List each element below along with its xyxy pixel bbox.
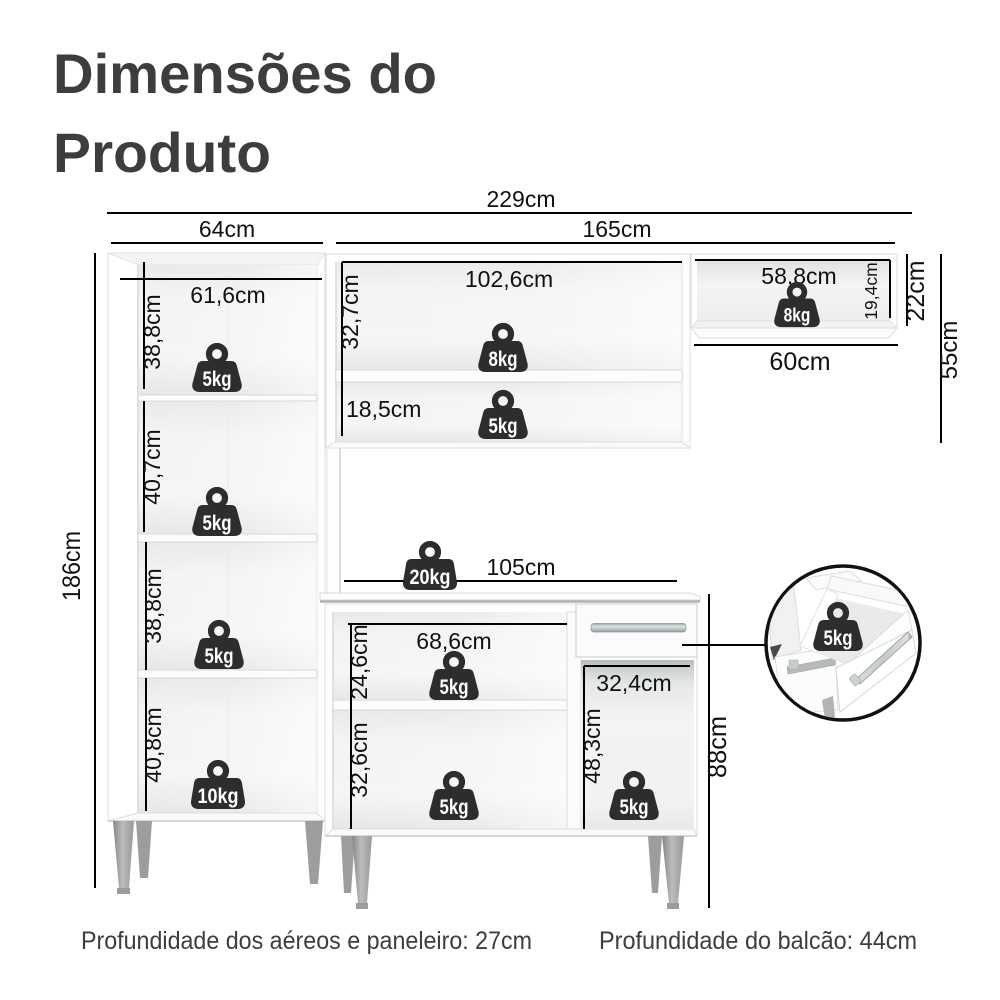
svg-text:Profundidade do balcão: 44cm: Profundidade do balcão: 44cm — [599, 927, 917, 955]
svg-text:165cm: 165cm — [582, 216, 651, 242]
svg-text:24,6cm: 24,6cm — [346, 624, 372, 699]
svg-text:40,7cm: 40,7cm — [139, 429, 165, 504]
svg-text:68,6cm: 68,6cm — [416, 628, 491, 654]
svg-text:32,4cm: 32,4cm — [596, 670, 671, 696]
svg-text:5kg: 5kg — [620, 796, 649, 819]
svg-text:48,3cm: 48,3cm — [579, 708, 605, 783]
svg-text:Profundidade dos aéreos e pane: Profundidade dos aéreos e paneleiro: 27c… — [81, 927, 532, 955]
svg-text:5kg: 5kg — [440, 796, 469, 819]
svg-text:5kg: 5kg — [203, 368, 232, 391]
svg-text:55cm: 55cm — [936, 321, 963, 380]
svg-text:32,7cm: 32,7cm — [337, 274, 363, 349]
svg-text:5kg: 5kg — [440, 676, 469, 699]
svg-text:229cm: 229cm — [486, 186, 555, 212]
svg-text:8kg: 8kg — [489, 348, 518, 371]
svg-text:5kg: 5kg — [824, 627, 853, 650]
svg-text:88cm: 88cm — [702, 716, 732, 778]
svg-text:102,6cm: 102,6cm — [465, 266, 553, 292]
svg-text:5kg: 5kg — [489, 415, 518, 438]
svg-text:38,8cm: 38,8cm — [139, 294, 165, 369]
svg-text:38,8cm: 38,8cm — [140, 568, 166, 643]
svg-text:61,6cm: 61,6cm — [190, 282, 265, 308]
svg-text:8kg: 8kg — [784, 306, 811, 327]
svg-text:60cm: 60cm — [769, 348, 830, 376]
svg-text:40,8cm: 40,8cm — [140, 707, 166, 782]
svg-text:19,4cm: 19,4cm — [861, 262, 881, 319]
svg-text:5kg: 5kg — [203, 512, 232, 535]
svg-text:Produto: Produto — [53, 121, 271, 184]
svg-text:Dimensões do: Dimensões do — [53, 42, 437, 105]
svg-text:20kg: 20kg — [410, 566, 451, 589]
svg-text:105cm: 105cm — [486, 554, 555, 580]
svg-text:32,6cm: 32,6cm — [346, 722, 372, 797]
svg-text:22cm: 22cm — [902, 260, 930, 321]
svg-text:186cm: 186cm — [58, 531, 86, 601]
svg-text:64cm: 64cm — [199, 216, 255, 242]
svg-text:10kg: 10kg — [198, 785, 239, 808]
svg-text:18,5cm: 18,5cm — [346, 396, 421, 422]
svg-text:5kg: 5kg — [205, 645, 234, 668]
